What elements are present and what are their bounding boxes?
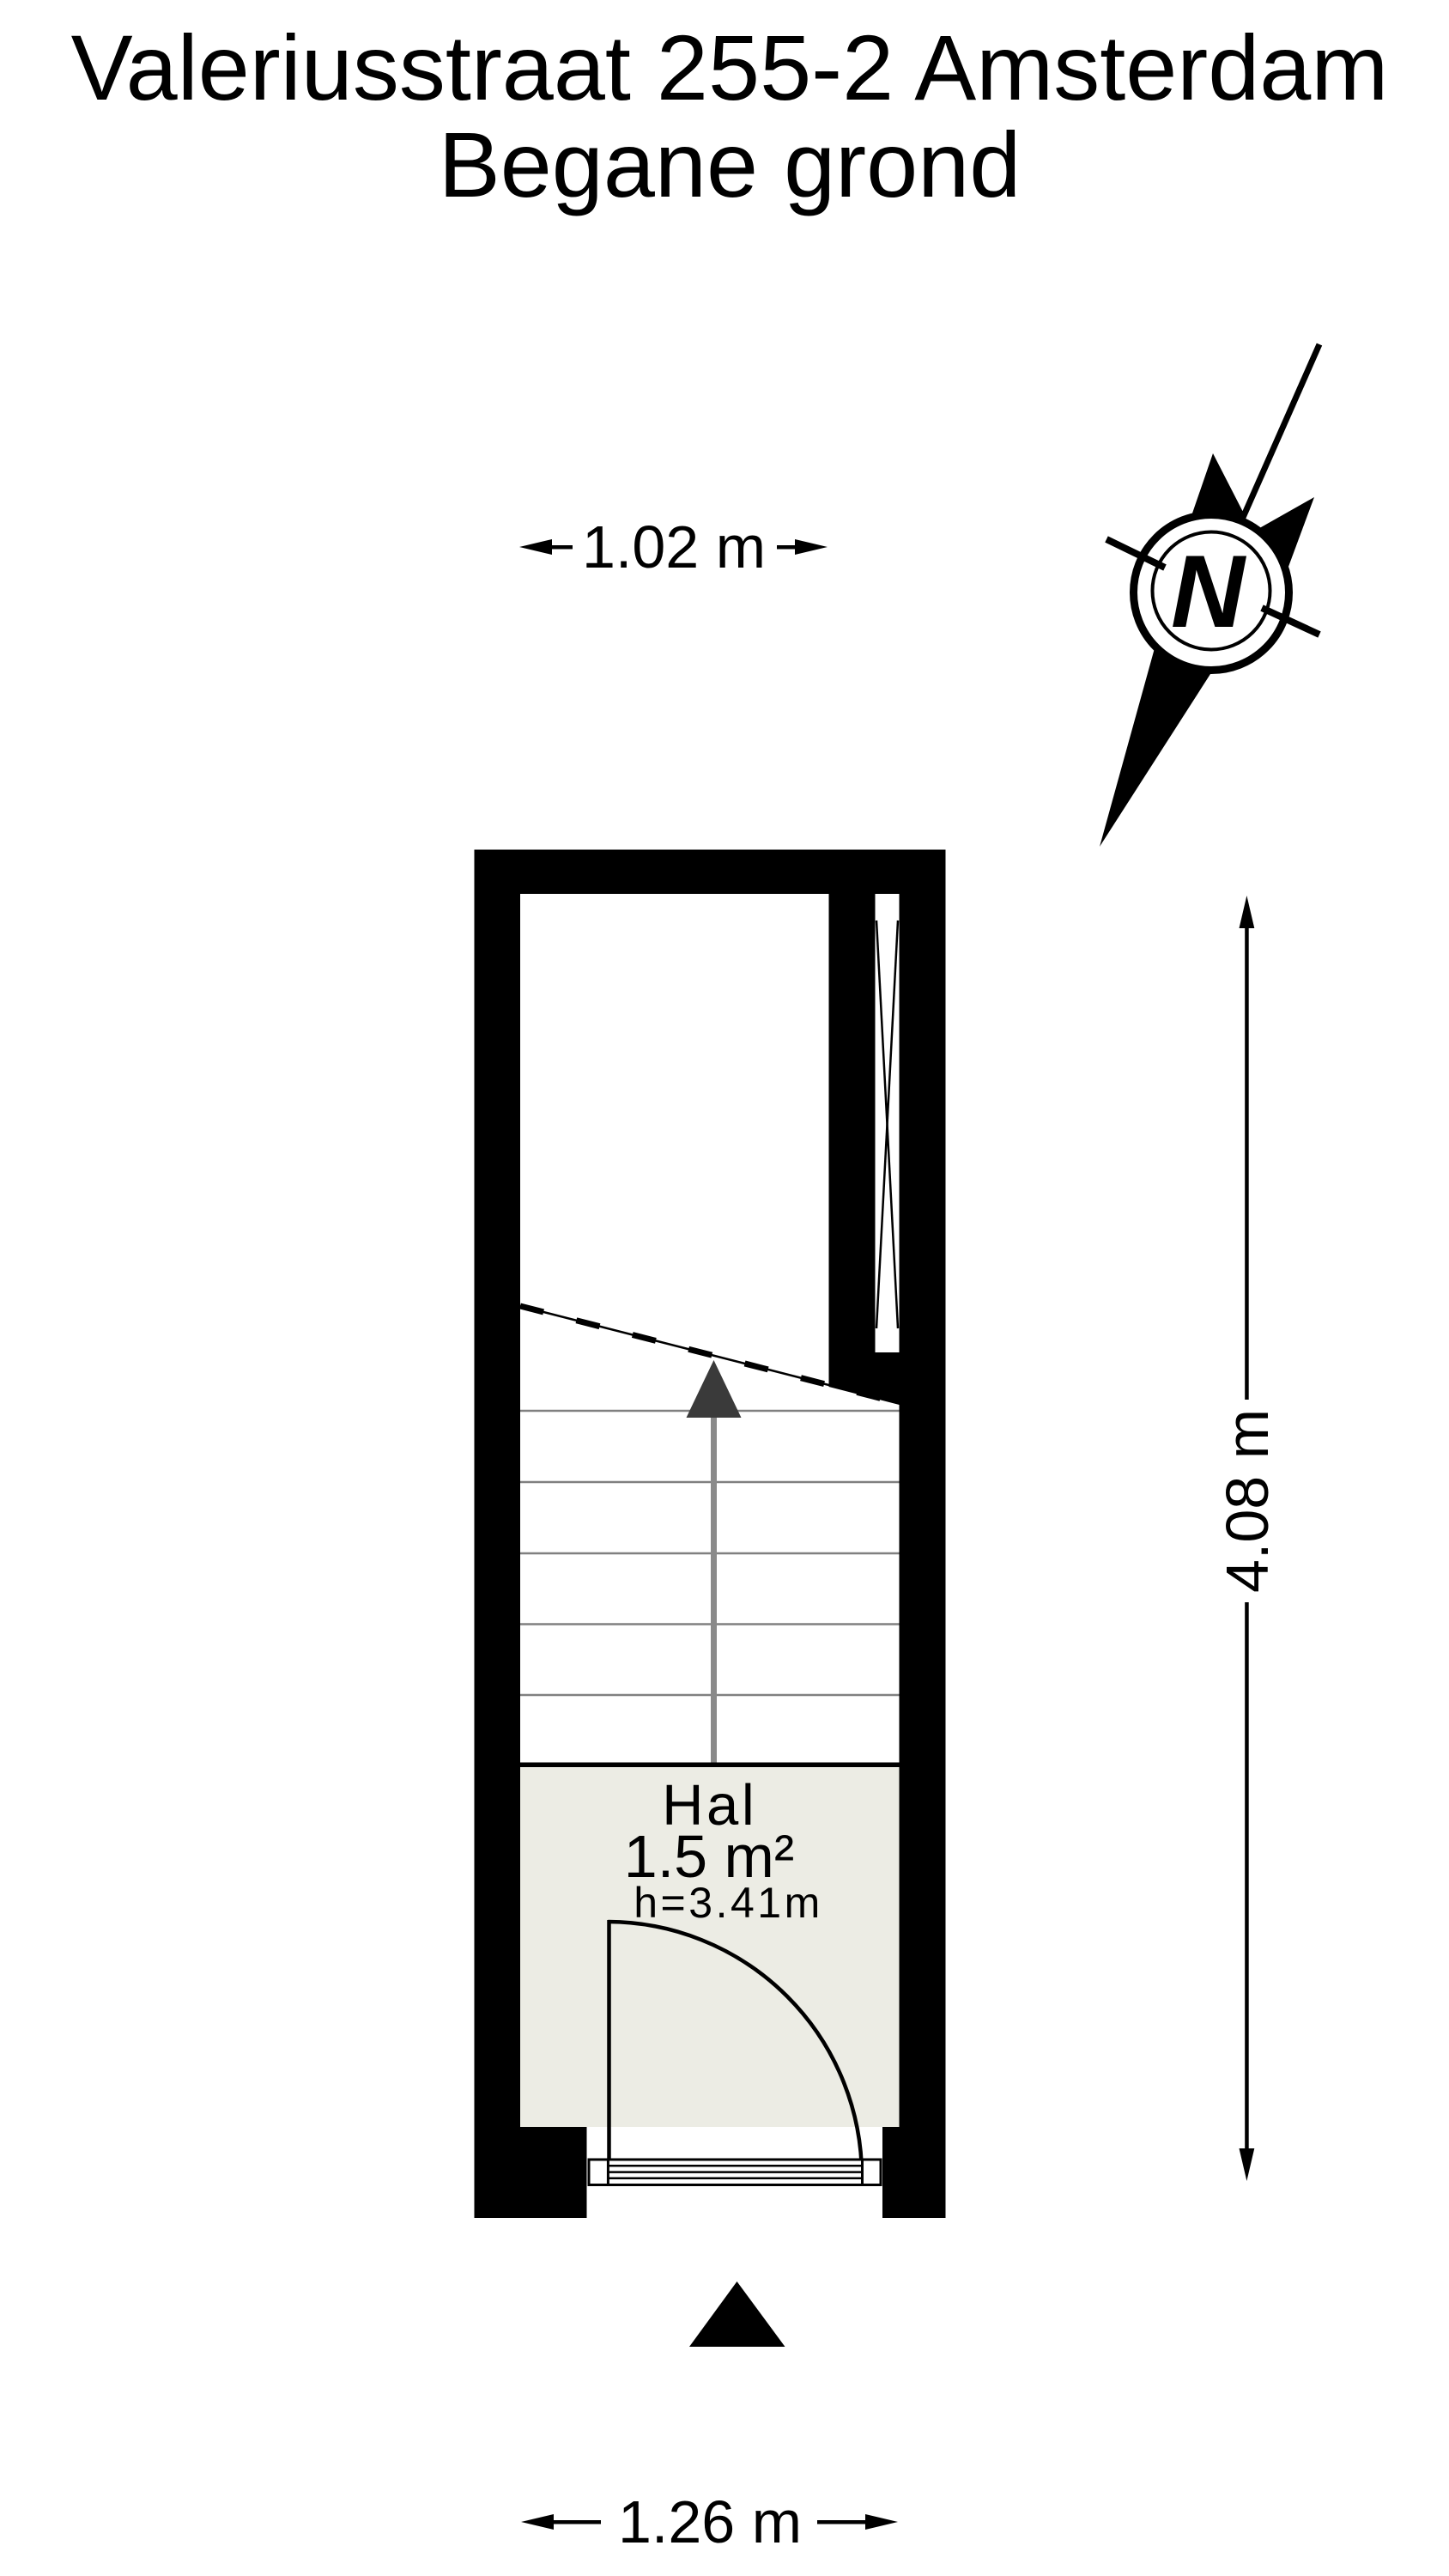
svg-text:1.26 m: 1.26 m bbox=[618, 2488, 802, 2555]
svg-text:1.02 m: 1.02 m bbox=[582, 513, 766, 580]
svg-text:Valeriusstraat 255-2 Amsterdam: Valeriusstraat 255-2 Amsterdam bbox=[71, 15, 1389, 119]
svg-text:h=3.41m: h=3.41m bbox=[634, 1879, 822, 1927]
svg-text:4.08 m: 4.08 m bbox=[1214, 1409, 1281, 1593]
svg-text:Begane grond: Begane grond bbox=[439, 112, 1022, 216]
svg-text:N: N bbox=[1171, 534, 1246, 649]
